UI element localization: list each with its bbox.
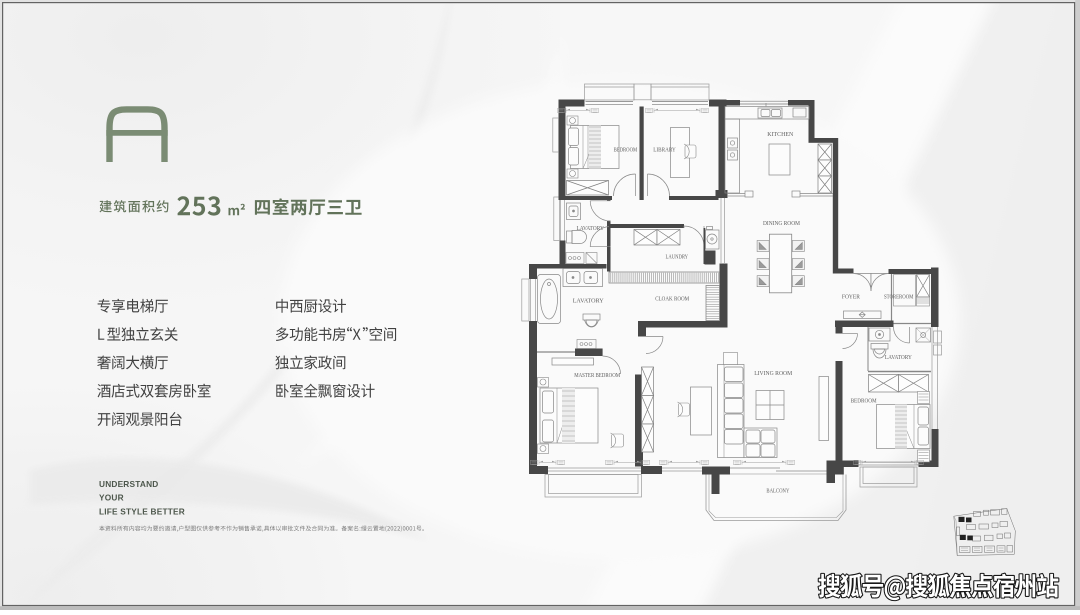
svg-text:LAVATORY: LAVATORY xyxy=(576,225,604,232)
svg-text:BEDROOM: BEDROOM xyxy=(851,397,877,404)
svg-text:MASTER BEDROOM: MASTER BEDROOM xyxy=(574,372,620,379)
svg-text:LAUNDRY: LAUNDRY xyxy=(666,254,689,261)
svg-text:LIFE STYLE BETTER: LIFE STYLE BETTER xyxy=(99,506,185,516)
svg-text:BALCONY: BALCONY xyxy=(766,487,789,494)
svg-text:UNDERSTAND: UNDERSTAND xyxy=(99,479,158,489)
svg-text:CLOAK ROOM: CLOAK ROOM xyxy=(655,296,689,303)
svg-text:LAVATORY: LAVATORY xyxy=(573,298,604,305)
svg-text:LIBRARY: LIBRARY xyxy=(653,147,676,154)
svg-text:LAVATORY: LAVATORY xyxy=(885,354,912,361)
svg-text:BEDROOM: BEDROOM xyxy=(614,147,638,154)
svg-text:STOREROOM: STOREROOM xyxy=(884,293,914,300)
svg-text:LIVING ROOM: LIVING ROOM xyxy=(754,370,792,377)
svg-text:FOYER: FOYER xyxy=(842,293,861,300)
svg-text:DINING ROOM: DINING ROOM xyxy=(763,220,800,227)
svg-text:YOUR: YOUR xyxy=(99,493,124,503)
svg-text:KITCHEN: KITCHEN xyxy=(767,131,793,138)
